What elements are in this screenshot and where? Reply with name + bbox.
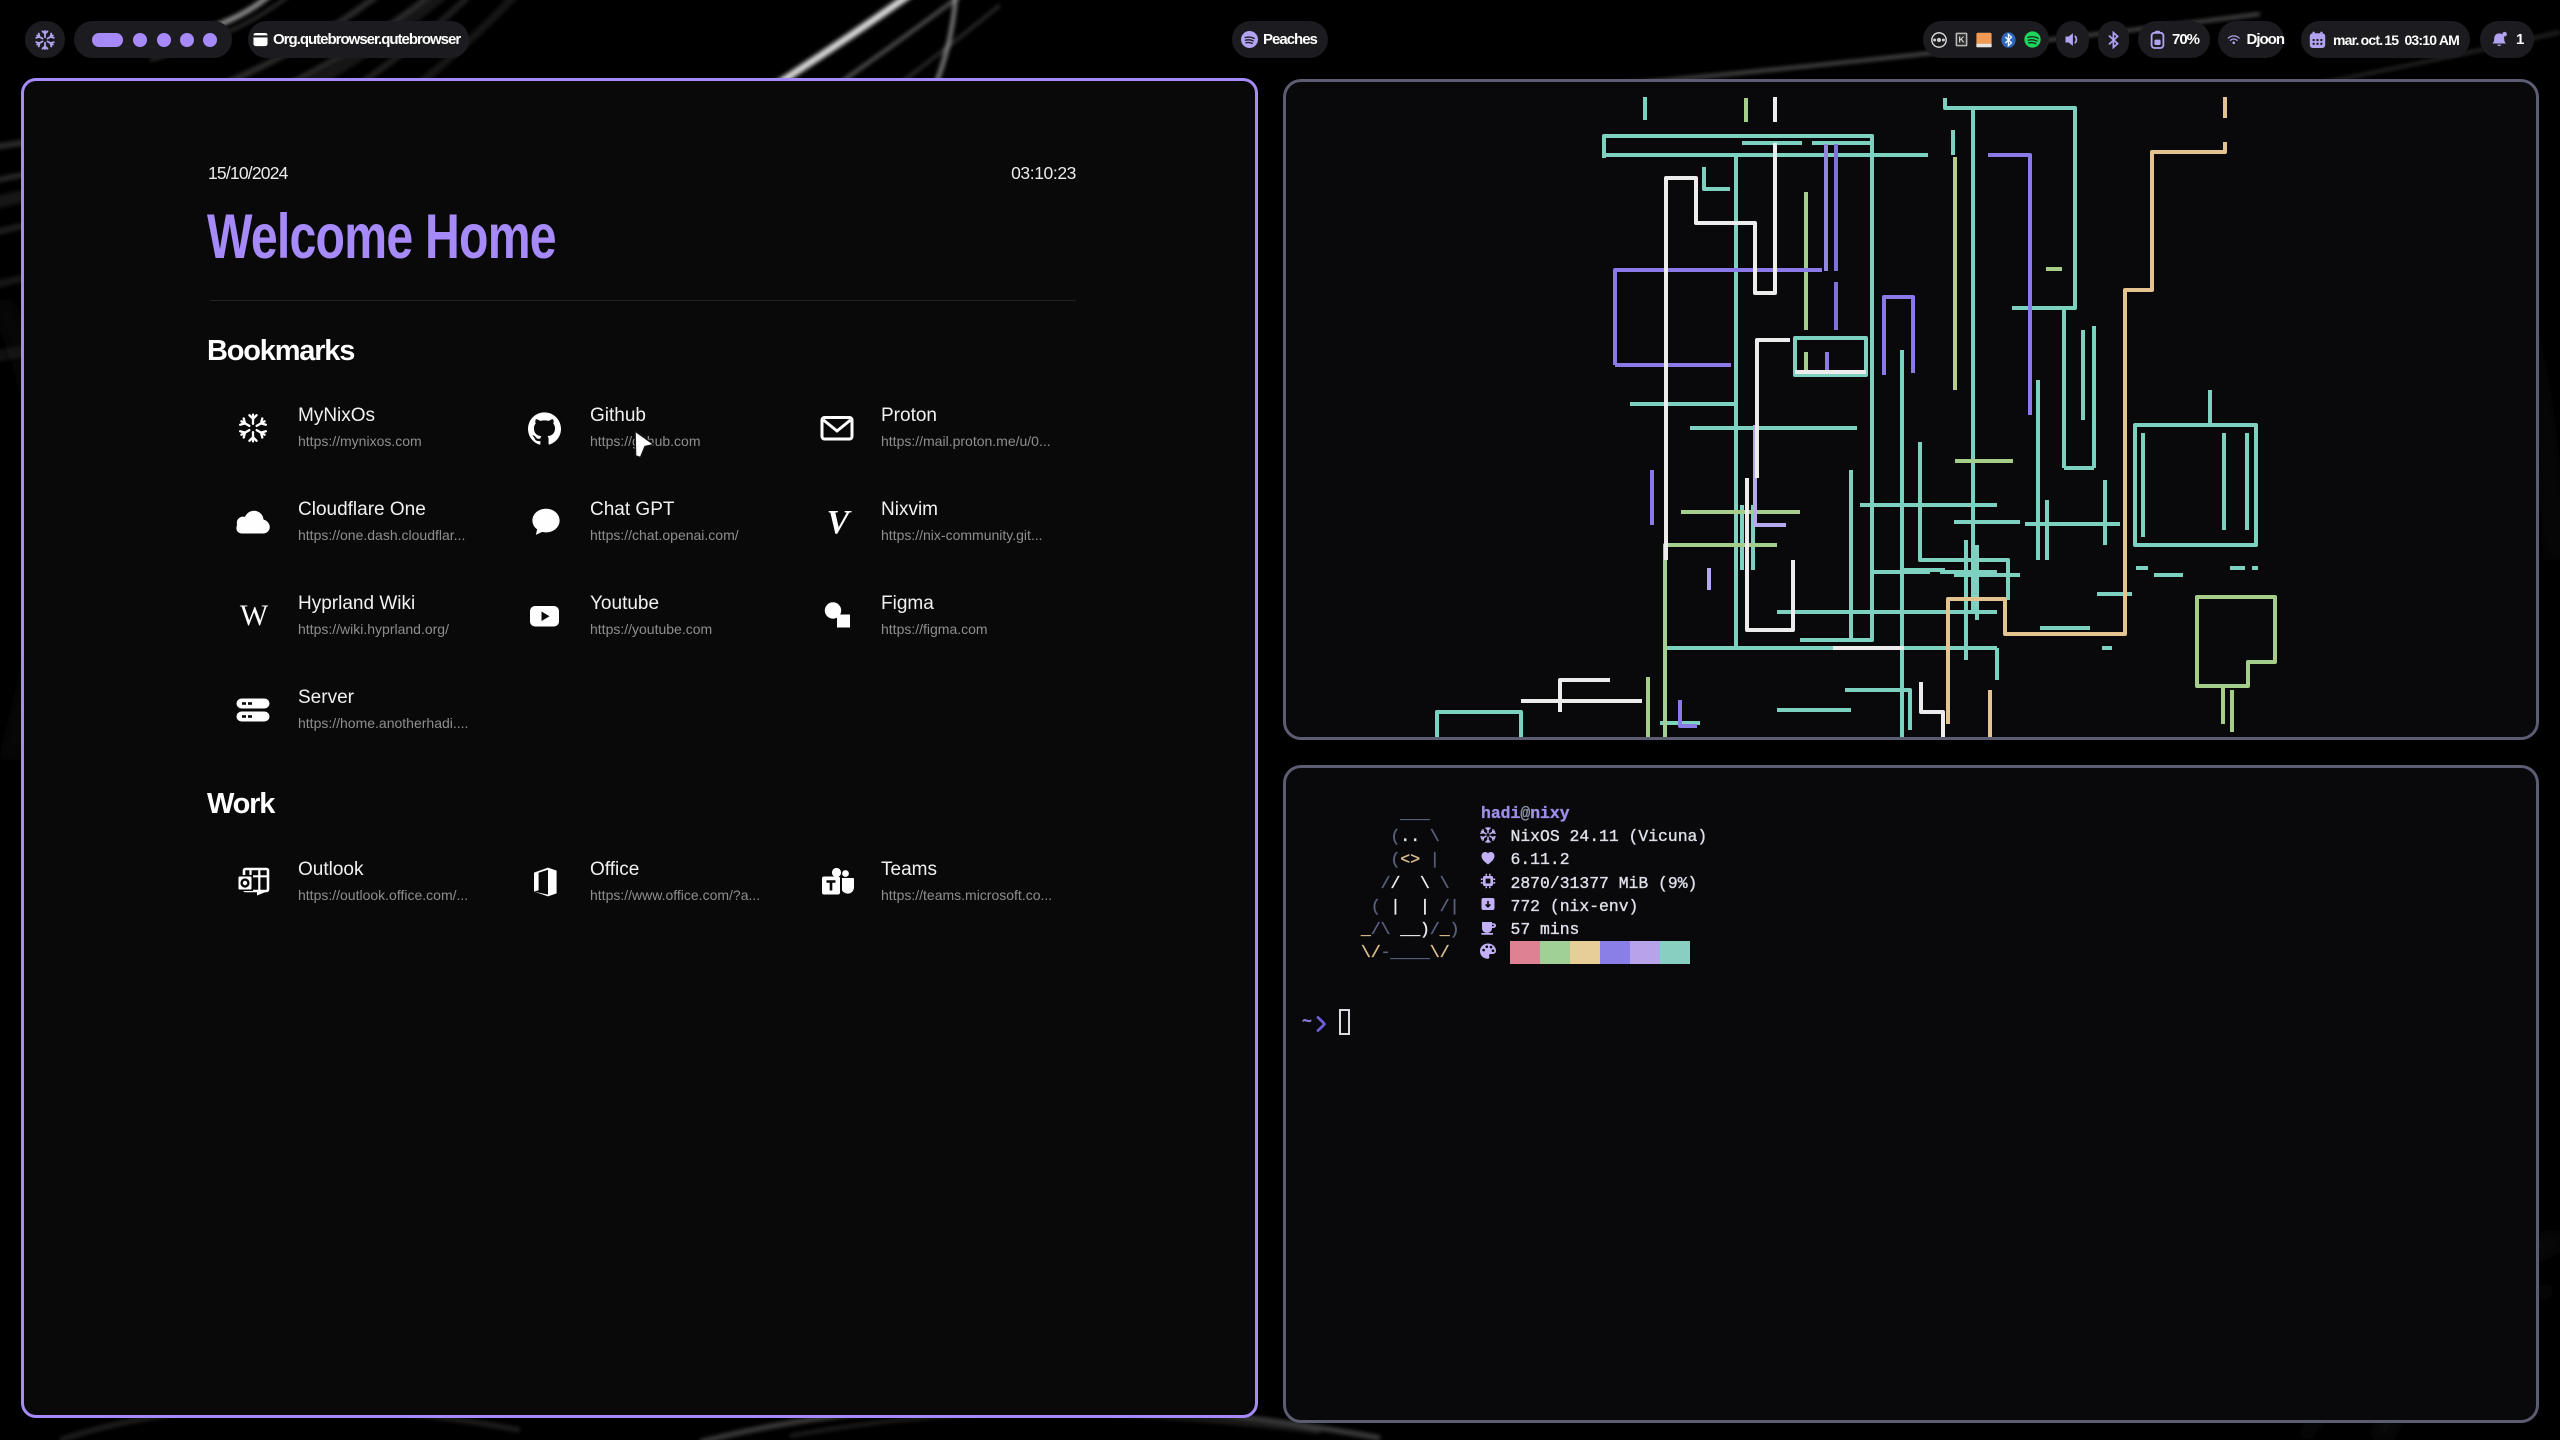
svg-text:V: V [827,506,852,538]
svg-text:K: K [1959,35,1965,45]
svg-text:W: W [240,600,269,632]
